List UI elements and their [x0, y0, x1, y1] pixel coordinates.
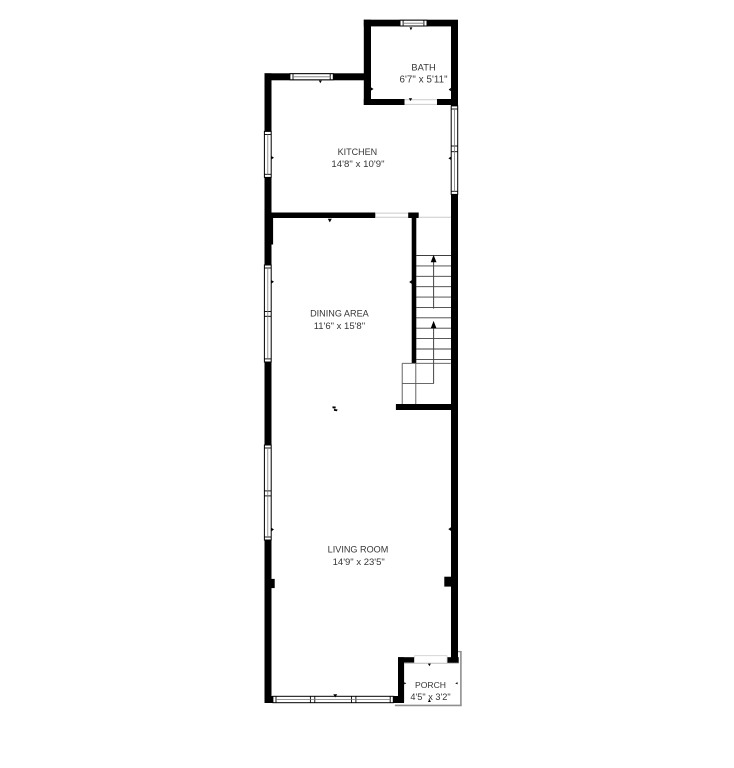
- svg-text:DINING AREA: DINING AREA: [310, 309, 370, 319]
- svg-text:11'6" x 15'8": 11'6" x 15'8": [314, 321, 365, 332]
- svg-text:6'7" x 5'11": 6'7" x 5'11": [399, 74, 448, 85]
- svg-text:14'8" x 10'9": 14'8" x 10'9": [331, 159, 384, 170]
- svg-text:4'5" x 3'2": 4'5" x 3'2": [410, 692, 450, 702]
- svg-text:KITCHEN: KITCHEN: [338, 147, 378, 157]
- svg-text:14'9" x 23'5": 14'9" x 23'5": [333, 557, 385, 568]
- svg-text:PORCH: PORCH: [415, 680, 446, 690]
- svg-text:LIVING ROOM: LIVING ROOM: [328, 545, 389, 555]
- svg-text:BATH: BATH: [411, 62, 436, 72]
